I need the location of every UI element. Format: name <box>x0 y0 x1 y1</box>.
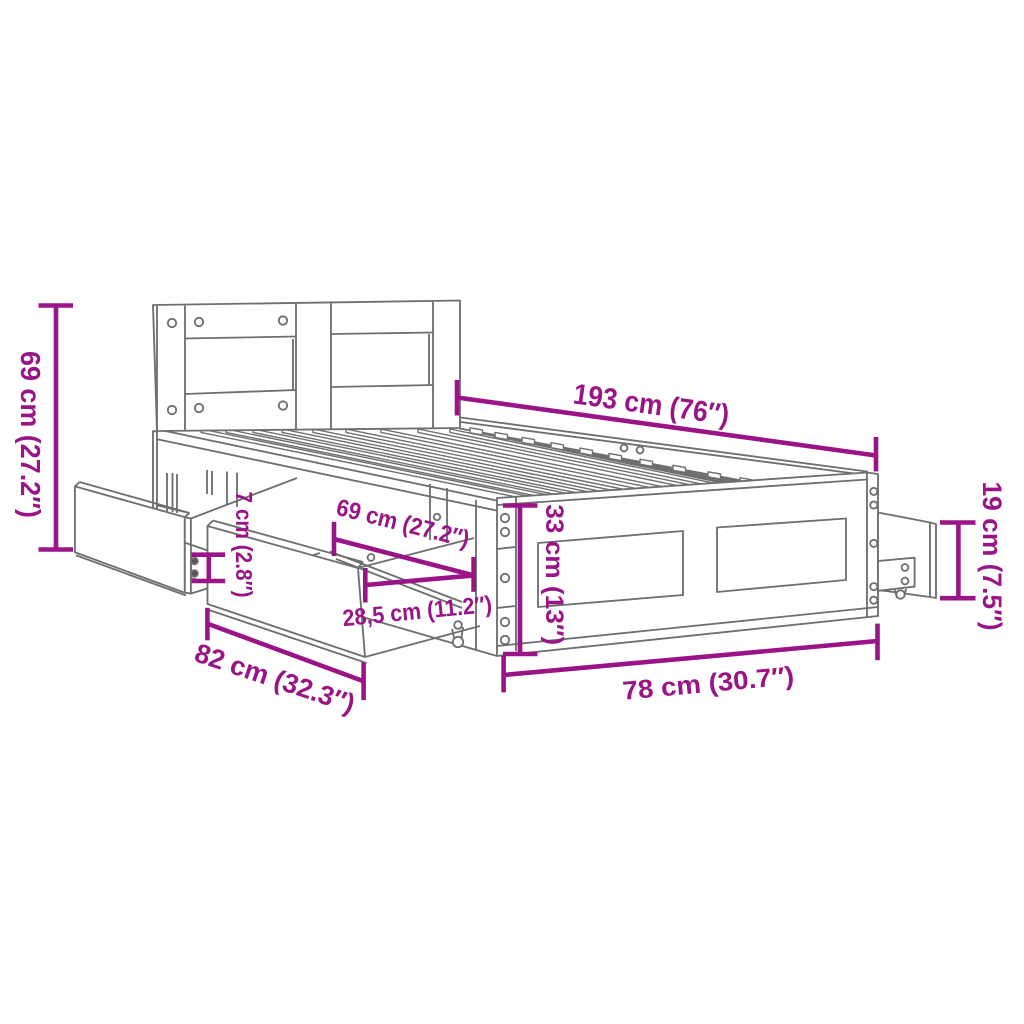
svg-text:33 cm (13″): 33 cm (13″) <box>540 504 568 645</box>
svg-text:19 cm (7.5″): 19 cm (7.5″) <box>977 482 1007 631</box>
svg-text:78 cm (30.7″): 78 cm (30.7″) <box>621 660 795 705</box>
svg-text:7 cm (2.8″): 7 cm (2.8″) <box>231 492 257 598</box>
svg-text:69 cm (27.2″): 69 cm (27.2″) <box>15 351 46 518</box>
